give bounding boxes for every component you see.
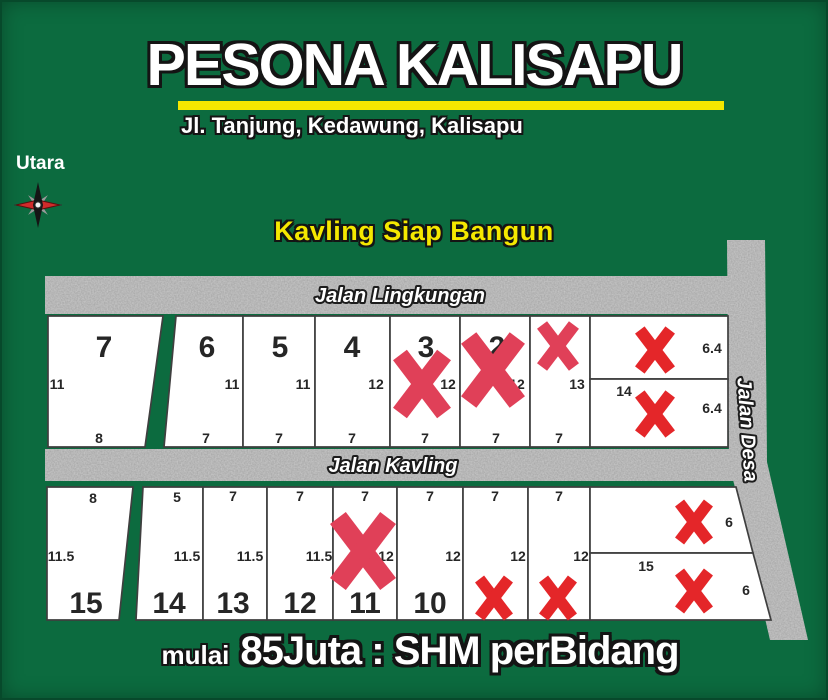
road-label-jalan-lingkungan: Jalan Lingkungan [315, 285, 485, 307]
dimension-label: 7 [491, 488, 499, 504]
dimension-label: 6.4 [702, 400, 722, 416]
dimension-label: 14 [616, 383, 632, 399]
dimension-label: 12 [368, 376, 384, 392]
dimension-label: 11.5 [48, 548, 75, 564]
dimension-label: 11.5 [237, 548, 264, 564]
dimension-label: 7 [361, 488, 369, 504]
plot-4: 4127 [315, 316, 390, 447]
dimension-label: 11 [50, 376, 65, 392]
dimension-label: 11.5 [174, 548, 201, 564]
dimension-label: 12 [573, 548, 589, 564]
plot-8: 712 [528, 487, 590, 620]
plot-2: 2127 [460, 316, 530, 447]
dimension-label: 7 [426, 488, 434, 504]
plot-number: 10 [413, 587, 446, 620]
plot-br_lower: 156 [590, 553, 771, 620]
road-label-jalan-kavling: Jalan Kavling [329, 455, 458, 477]
dimension-label: 7 [275, 430, 283, 446]
dimension-label: 8 [95, 430, 103, 446]
dimension-label: 13 [569, 376, 585, 392]
dimension-label: 7 [421, 430, 429, 446]
plot-5: 5117 [243, 316, 315, 447]
plot-number: 4 [344, 331, 361, 364]
plot-br_upper: 6 [590, 487, 753, 553]
plot-12: 12711.5 [267, 487, 333, 620]
dimension-label: 8 [89, 490, 97, 506]
plot-9: 712 [463, 487, 528, 620]
plot-7: 7118 [48, 316, 163, 447]
dimension-label: 12 [510, 548, 526, 564]
dimension-label: 11 [296, 376, 311, 392]
dimension-label: 7 [492, 430, 500, 446]
dimension-label: 7 [296, 488, 304, 504]
price-text: 85Juta : SHM perBidang [240, 629, 678, 674]
plot-13: 13711.5 [203, 487, 267, 620]
plot-number: 15 [69, 587, 102, 620]
dimension-label: 5 [173, 489, 181, 505]
plot-number: 5 [272, 331, 289, 364]
plot-6: 6117 [164, 316, 243, 447]
plot-number: 11 [349, 587, 381, 620]
plot-number: 13 [216, 587, 249, 620]
dimension-label: 11 [225, 376, 240, 392]
dimension-label: 7 [229, 488, 237, 504]
dimension-label: 7 [202, 430, 210, 446]
dimension-label: 6 [742, 582, 750, 598]
plot-10: 10712 [397, 487, 463, 620]
price-prefix: mulai [162, 640, 230, 671]
plot-tr_upper: 6.4 [590, 316, 728, 379]
plot-14: 14511.5 [136, 487, 203, 620]
dimension-label: 11.5 [306, 548, 333, 564]
dimension-label: 12 [440, 376, 456, 392]
plot-3: 3127 [390, 316, 460, 447]
plot-number: 6 [199, 331, 216, 364]
dimension-label: 6.4 [702, 340, 722, 356]
flyer: PESONA KALISAPU Jl. Tanjung, Kedawung, K… [0, 0, 828, 700]
dimension-label: 7 [348, 430, 356, 446]
dimension-label: 7 [555, 488, 563, 504]
plot-tr_lower: 146.4 [590, 379, 728, 447]
plot-number: 7 [96, 331, 113, 364]
plot-11: 11712 [333, 487, 397, 620]
dimension-label: 7 [555, 430, 563, 446]
dimension-label: 15 [638, 558, 654, 574]
dimension-label: 12 [445, 548, 461, 564]
price-banner: mulai 85Juta : SHM perBidang [6, 629, 828, 674]
plot-number: 12 [283, 587, 316, 620]
plot-15: 15811.5 [47, 487, 133, 620]
dimension-label: 6 [725, 514, 733, 530]
site-map: Jalan Lingkungan Jalan Kavling Jalan Des… [0, 0, 828, 700]
plot-1: 137 [530, 316, 590, 447]
plot-number: 14 [152, 587, 186, 620]
